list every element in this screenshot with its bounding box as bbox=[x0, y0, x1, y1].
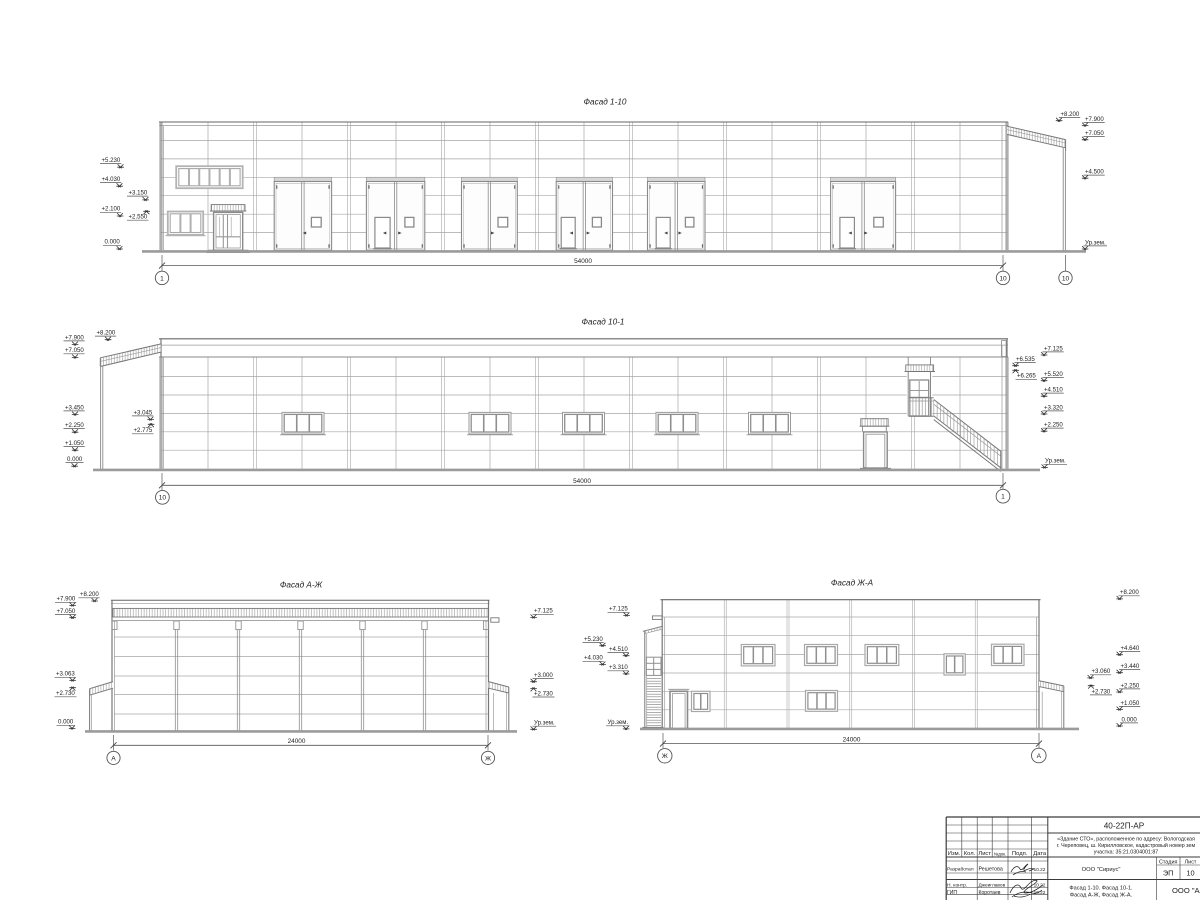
svg-text:+2.775: +2.775 bbox=[134, 427, 153, 434]
svg-text:Изм.: Изм. bbox=[948, 851, 961, 857]
svg-text:+7.125: +7.125 bbox=[609, 606, 628, 613]
svg-text:Фасад 10-1: Фасад 10-1 bbox=[582, 318, 625, 327]
svg-text:Ж: Ж bbox=[485, 755, 491, 762]
svg-text:10: 10 bbox=[1186, 869, 1194, 878]
svg-text:ГИП: ГИП bbox=[947, 890, 957, 896]
svg-text:24000: 24000 bbox=[288, 738, 306, 745]
svg-text:+6.265: +6.265 bbox=[1017, 373, 1036, 380]
svg-text:+5.230: +5.230 bbox=[102, 157, 121, 164]
svg-text:+3.310: +3.310 bbox=[609, 664, 628, 671]
svg-text:+3.000: +3.000 bbox=[534, 672, 553, 679]
svg-text:Кол.: Кол. bbox=[964, 851, 976, 857]
svg-text:+3.045: +3.045 bbox=[134, 409, 153, 416]
svg-text:54000: 54000 bbox=[574, 258, 592, 265]
svg-text:+4.030: +4.030 bbox=[584, 655, 603, 662]
svg-text:Лист: Лист bbox=[1185, 859, 1197, 865]
svg-text:+7.050: +7.050 bbox=[65, 347, 84, 354]
svg-text:1: 1 bbox=[1001, 494, 1005, 501]
svg-text:+7.125: +7.125 bbox=[534, 608, 553, 615]
svg-text:+3.060: +3.060 bbox=[1092, 668, 1111, 675]
svg-text:Ж: Ж bbox=[662, 753, 668, 760]
svg-text:ООО "Альянс": ООО "Альянс" bbox=[1172, 886, 1200, 895]
svg-text:Фасад А-Ж: Фасад А-Ж bbox=[280, 581, 323, 590]
svg-text:+7.900: +7.900 bbox=[57, 596, 76, 603]
svg-text:Ур.зем.: Ур.зем. bbox=[534, 720, 555, 727]
svg-text:+2.100: +2.100 bbox=[102, 206, 121, 213]
svg-text:0.000: 0.000 bbox=[1122, 716, 1138, 723]
svg-text:+4.640: +4.640 bbox=[1121, 645, 1140, 652]
svg-text:40-22П-АР: 40-22П-АР bbox=[1104, 821, 1145, 830]
svg-text:№док.: №док. bbox=[994, 851, 1006, 856]
svg-text:+7.900: +7.900 bbox=[1085, 116, 1104, 123]
svg-text:+2.730: +2.730 bbox=[1092, 688, 1111, 695]
svg-text:+2.250: +2.250 bbox=[1121, 682, 1140, 689]
svg-text:0.000: 0.000 bbox=[58, 719, 74, 726]
svg-text:Фасад А-Ж, Фасад Ж-А.: Фасад А-Ж, Фасад Ж-А. bbox=[1070, 893, 1133, 899]
svg-text:+3.063: +3.063 bbox=[56, 671, 75, 678]
svg-text:Джеиглавов: Джеиглавов bbox=[979, 882, 1006, 888]
svg-text:ООО "Сириус": ООО "Сириус" bbox=[1082, 867, 1121, 873]
svg-text:А: А bbox=[111, 755, 116, 762]
svg-text:0.000: 0.000 bbox=[67, 456, 83, 463]
svg-text:+2.730: +2.730 bbox=[56, 690, 75, 697]
svg-text:участка: 35:21.0304001:87: участка: 35:21.0304001:87 bbox=[1094, 850, 1159, 856]
svg-text:+5.230: +5.230 bbox=[584, 636, 603, 643]
svg-text:+1.050: +1.050 bbox=[65, 440, 84, 447]
svg-text:24000: 24000 bbox=[843, 736, 861, 743]
svg-text:Фасад 1-10. Фасад 10-1.: Фасад 1-10. Фасад 10-1. bbox=[1069, 885, 1133, 891]
svg-text:+8.200: +8.200 bbox=[80, 591, 99, 598]
svg-text:+4.510: +4.510 bbox=[1044, 387, 1063, 394]
svg-text:10: 10 bbox=[999, 275, 1007, 282]
svg-text:+7.050: +7.050 bbox=[57, 608, 76, 615]
svg-text:Фасад Ж-А: Фасад Ж-А bbox=[831, 579, 874, 588]
svg-text:+7.125: +7.125 bbox=[1044, 345, 1063, 352]
svg-text:54000: 54000 bbox=[573, 478, 591, 485]
svg-text:+8.200: +8.200 bbox=[1120, 589, 1139, 596]
svg-text:Дата: Дата bbox=[1033, 851, 1047, 857]
svg-text:+8.200: +8.200 bbox=[1061, 111, 1080, 118]
svg-text:«Здание СТО», расположенное по: «Здание СТО», расположенное по адресу: В… bbox=[1057, 836, 1195, 842]
svg-text:Фасад 1-10: Фасад 1-10 bbox=[584, 98, 627, 107]
svg-text:1: 1 bbox=[160, 275, 164, 282]
svg-text:Н. контр.: Н. контр. bbox=[947, 882, 967, 888]
svg-text:+8.200: +8.200 bbox=[97, 330, 116, 337]
svg-text:Решетова: Решетова bbox=[979, 867, 1003, 873]
svg-text:+2.250: +2.250 bbox=[1044, 422, 1063, 429]
svg-text:+3.440: +3.440 bbox=[1121, 663, 1140, 670]
svg-text:Ур.зем.: Ур.зем. bbox=[1045, 458, 1066, 465]
svg-text:+6.535: +6.535 bbox=[1016, 356, 1035, 363]
svg-text:10.22: 10.22 bbox=[1034, 867, 1046, 872]
svg-text:г. Череповец, ш. Кирилловское,: г. Череповец, ш. Кирилловское, кадастров… bbox=[1057, 842, 1196, 849]
svg-text:Ур.зем.: Ур.зем. bbox=[1085, 239, 1106, 246]
svg-text:Ур.зем.: Ур.зем. bbox=[608, 719, 629, 726]
svg-text:+4.510: +4.510 bbox=[609, 646, 628, 653]
svg-text:+2.550: +2.550 bbox=[129, 214, 148, 221]
svg-text:А: А bbox=[1037, 753, 1042, 760]
svg-text:+3.150: +3.150 bbox=[129, 190, 148, 197]
svg-text:10: 10 bbox=[159, 495, 167, 502]
svg-text:+4.500: +4.500 bbox=[1085, 169, 1104, 176]
svg-text:+7.900: +7.900 bbox=[65, 334, 84, 341]
svg-text:10: 10 bbox=[1062, 275, 1070, 282]
svg-text:+2.250: +2.250 bbox=[65, 422, 84, 429]
svg-text:ЭП: ЭП bbox=[1163, 869, 1174, 878]
svg-text:+3.450: +3.450 bbox=[65, 404, 84, 411]
svg-text:+2.730: +2.730 bbox=[534, 690, 553, 697]
svg-text:Стадия: Стадия bbox=[1159, 859, 1177, 865]
svg-text:Разработал: Разработал bbox=[947, 867, 974, 873]
svg-text:Лист: Лист bbox=[978, 851, 991, 857]
svg-text:Коротаев: Коротаев bbox=[979, 890, 1001, 896]
svg-text:+5.520: +5.520 bbox=[1044, 371, 1063, 378]
svg-text:+1.050: +1.050 bbox=[1121, 700, 1140, 707]
svg-text:0.000: 0.000 bbox=[105, 239, 121, 246]
svg-text:+3.320: +3.320 bbox=[1044, 404, 1063, 411]
svg-text:+7.050: +7.050 bbox=[1085, 130, 1104, 137]
svg-text:10.22: 10.22 bbox=[1034, 890, 1046, 895]
svg-text:+4.030: +4.030 bbox=[102, 176, 121, 183]
svg-text:Подп.: Подп. bbox=[1012, 851, 1028, 857]
